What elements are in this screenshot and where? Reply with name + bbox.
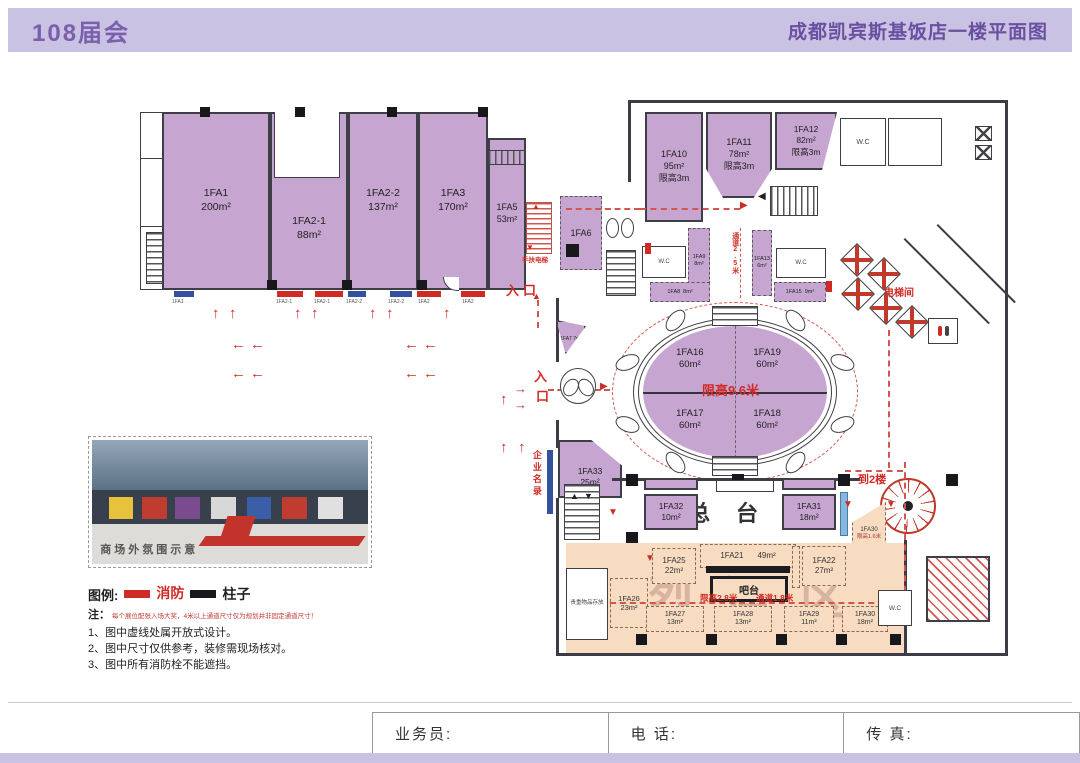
room-1fa31: 1FA3118m² xyxy=(782,494,836,530)
entrance-label-vertical: 入 xyxy=(534,370,547,384)
elevator-icon xyxy=(975,145,992,160)
wall-segment xyxy=(628,100,1008,103)
pillar xyxy=(566,244,579,257)
up-arrow-icon: ↑ xyxy=(369,306,377,321)
pillar xyxy=(626,474,638,486)
room-1fa28: 1FA2813m² xyxy=(714,606,772,632)
down-triangle-icon: ▼ xyxy=(843,500,853,510)
legend-title: 图例: xyxy=(88,585,118,604)
pillar xyxy=(417,280,427,290)
aisle-note: 通道2.5米 xyxy=(731,232,739,274)
wall-segment xyxy=(556,498,559,656)
pillar xyxy=(295,107,305,117)
room-1fa11: 1FA1178m²限高3m xyxy=(706,112,772,198)
pillar xyxy=(478,107,488,117)
room-1fa21: 1FA2149m² xyxy=(700,544,796,568)
red-carpet xyxy=(199,536,366,546)
room-strip xyxy=(792,546,800,588)
room-1fa12: 1FA1282m²限高3m xyxy=(775,112,837,170)
header-bar: 108届会 成都凯宾斯基饭店一楼平面图 xyxy=(8,8,1072,52)
fire-hydrant-marker xyxy=(645,243,651,254)
front-desk-label: 总台 xyxy=(688,496,784,528)
note-prefix: 注： xyxy=(88,606,110,622)
page-title: 108届会 xyxy=(32,13,130,48)
booth-marker xyxy=(390,291,412,297)
pillar xyxy=(200,107,210,117)
plan-title: 成都凯宾斯基饭店一楼平面图 xyxy=(788,17,1048,44)
storefront xyxy=(175,497,200,520)
desk-counter xyxy=(782,478,836,490)
phone-field: 电 话: xyxy=(608,713,844,753)
footer-accent-bar xyxy=(0,753,1080,763)
booth-marker-label: 1FA2 xyxy=(418,299,430,305)
booth-marker xyxy=(348,291,366,297)
room-1fa15: 1FA159m² xyxy=(774,282,826,302)
oval-entry-steps xyxy=(712,306,758,326)
wall-segment xyxy=(558,653,1008,656)
room-1fa29: 1FA2911m² xyxy=(784,606,834,632)
room-1fa1: 1FA1200m² xyxy=(162,112,270,290)
up-triangle-icon: ▲ xyxy=(570,492,579,501)
note-red-row: 注： 每个展位配张入场大奖，4米以上通道尺寸仅为规划并非固定通道尺寸！ xyxy=(88,606,317,622)
path-dashed xyxy=(904,462,906,602)
storefront xyxy=(142,497,167,520)
pillar xyxy=(342,280,352,290)
legend-pillar-label: 柱子 xyxy=(222,584,250,604)
floor-plan-sheet: 108届会 成都凯宾斯基饭店一楼平面图 1FA1200m² 1FA2-188m²… xyxy=(0,0,1080,763)
footer-table: 业务员: 电 话: 传 真: xyxy=(372,712,1080,754)
note-red: 每个展位配张入场大奖，4米以上通道尺寸仅为规划并非固定通道尺寸！ xyxy=(112,610,317,620)
elevator-icon xyxy=(867,257,901,291)
down-triangle-icon: ▼ xyxy=(584,492,593,501)
up-arrow-icon: ↑ xyxy=(443,306,451,321)
left-arrow-icon: ← xyxy=(423,337,438,352)
wall-diagonal xyxy=(937,224,1016,303)
right-arrow-icon: → xyxy=(514,382,527,395)
path-dashed xyxy=(740,228,741,298)
room-wc: W.C xyxy=(776,248,826,278)
pillar xyxy=(890,634,901,645)
room-valuables: 贵重物品存放 xyxy=(566,568,608,640)
stairs-icon xyxy=(770,186,818,216)
room-1fa32: 1FA3210m² xyxy=(644,494,698,530)
left-arrow-icon: ← xyxy=(250,337,265,352)
stairs-red-icon xyxy=(926,556,990,622)
room-1fa7: 1FA7 7m² xyxy=(556,320,586,354)
oval-height-note: 限高9.6米 xyxy=(702,384,759,398)
door-leaf-icon xyxy=(575,376,597,400)
note-3: 3、图中所有消防栓不能遮挡。 xyxy=(88,658,317,674)
path-dashed xyxy=(566,208,640,210)
wall-segment xyxy=(556,298,559,362)
up-triangle-icon: ▲ xyxy=(532,203,540,211)
red-carpet xyxy=(221,516,256,538)
right-triangle-icon: ▶ xyxy=(600,382,608,392)
booth-marker xyxy=(417,291,441,297)
door-leaf-icon xyxy=(621,218,634,238)
spiral-stair-icon xyxy=(880,478,936,534)
divider-line xyxy=(8,702,1072,703)
pillar xyxy=(836,634,847,645)
mall-exterior-photo: 商场外氛围示意 xyxy=(92,440,368,564)
booth-marker-label: 1FA2 xyxy=(462,299,474,305)
desk-counter xyxy=(716,480,774,492)
room-wc: W.C xyxy=(840,118,886,166)
room-1fa17: 1FA1760m² xyxy=(676,408,703,433)
note-2: 2、图中尺寸仅供参考，装修需现场核对。 xyxy=(88,642,317,658)
room-1fa25: 1FA2522m² xyxy=(652,548,696,584)
stairs-icon xyxy=(488,150,526,165)
up-triangle-icon: ▲ xyxy=(532,292,541,301)
elevator-icon xyxy=(975,126,992,141)
legend-fire-swatch xyxy=(124,590,150,598)
directory-board xyxy=(547,450,553,514)
room-1fa27: 1FA2713m² xyxy=(646,606,704,632)
right-triangle-icon: ▶ xyxy=(740,201,748,211)
room-1fa18: 1FA1860m² xyxy=(753,408,780,433)
room-1fa2-2: 1FA2-2137m² xyxy=(348,112,418,290)
path-dashed xyxy=(640,208,740,210)
left-arrow-icon: ← xyxy=(250,366,265,381)
fax-field: 传 真: xyxy=(843,713,1079,753)
room-wc: W.C xyxy=(878,590,912,626)
up-arrow-icon: ↑ xyxy=(500,440,508,455)
storefront xyxy=(282,497,307,520)
up-arrow-icon: ↑ xyxy=(500,392,508,407)
directory-label: 企业名录 xyxy=(531,450,541,498)
photo-frame: 商场外氛围示意 xyxy=(88,436,372,568)
up-arrow-icon: ↑ xyxy=(294,306,302,321)
pillar xyxy=(706,634,717,645)
booth-marker-label: 1FA1 xyxy=(172,299,184,305)
room-1fa22: 1FA2227m² xyxy=(802,546,846,586)
photo-caption: 商场外氛围示意 xyxy=(100,541,198,557)
path-dashed xyxy=(610,602,904,604)
void-room xyxy=(274,112,340,178)
room-1fa10: 1FA1095m²限高3m xyxy=(645,112,703,222)
up-arrow-icon: ↑ xyxy=(386,306,394,321)
booth-marker xyxy=(315,291,343,297)
left-arrow-icon: ← xyxy=(231,337,246,352)
room-1fa19: 1FA1960m² xyxy=(753,347,780,372)
room-1fa3: 1FA3170m² xyxy=(418,112,488,290)
person-icon xyxy=(938,326,942,336)
room-1fa13: 1FA136m² xyxy=(752,230,772,296)
revolving-door-icon xyxy=(560,368,596,404)
storefront xyxy=(318,497,343,520)
wall-segment xyxy=(628,100,631,182)
pillar xyxy=(387,107,397,117)
fire-hydrant-marker xyxy=(826,281,832,292)
oval-entry-steps xyxy=(712,456,758,476)
up-arrow-icon: ↑ xyxy=(229,306,237,321)
booth-marker xyxy=(461,291,485,297)
to-2f-label: 到2楼 xyxy=(858,474,886,486)
escalator-label: 手扶电梯 xyxy=(522,257,548,264)
left-arrow-icon: ← xyxy=(231,366,246,381)
up-arrow-icon: ↑ xyxy=(311,306,319,321)
left-arrow-icon: ← xyxy=(423,366,438,381)
down-triangle-icon: ▼ xyxy=(608,508,618,518)
pillar xyxy=(267,280,277,290)
photo-glass-facade xyxy=(92,440,368,490)
left-arrow-icon: ← xyxy=(404,337,419,352)
room-generic xyxy=(888,118,942,166)
room-1fa16: 1FA1660m² xyxy=(676,347,703,372)
desk-counter xyxy=(644,478,698,490)
entrance-label-vertical: 口 xyxy=(536,390,549,404)
pillar xyxy=(776,634,787,645)
notes-block: 注： 每个展位配张入场大奖，4米以上通道尺寸仅为规划并非固定通道尺寸！ 1、图中… xyxy=(88,606,317,674)
bar-counter-wall xyxy=(706,566,790,573)
booth-marker-label: 1FA2-1 xyxy=(276,299,292,305)
booth-marker xyxy=(174,291,194,297)
right-arrow-icon: → xyxy=(514,398,527,411)
left-triangle-icon: ◀ xyxy=(758,192,766,202)
restroom-sign xyxy=(928,318,958,344)
left-arrow-icon: ← xyxy=(404,366,419,381)
down-triangle-icon: ▼ xyxy=(526,244,534,252)
note-1: 1、图中虚线处属开放式设计。 xyxy=(88,626,317,642)
up-arrow-icon: ↑ xyxy=(518,440,526,455)
pillar xyxy=(946,474,958,486)
stairs-icon xyxy=(606,250,636,296)
path-dashed xyxy=(845,470,903,472)
legend-fire-label: 消防 xyxy=(156,586,184,601)
booth-marker-label: 1FA2-2 xyxy=(346,299,362,305)
legend-pillar-swatch xyxy=(190,590,216,598)
storefront xyxy=(109,497,134,520)
legend: 图例: 消防 柱子 xyxy=(88,584,250,604)
person-icon xyxy=(945,326,949,336)
up-arrow-icon: ↑ xyxy=(212,306,220,321)
pillar xyxy=(636,634,647,645)
booth-marker xyxy=(277,291,303,297)
wall-segment xyxy=(1005,100,1008,656)
path-dashed xyxy=(537,300,539,328)
pillar xyxy=(838,474,850,486)
elevator-hall-label: 电梯间 xyxy=(884,288,914,299)
path-dashed xyxy=(888,330,890,468)
agent-field: 业务员: xyxy=(373,713,608,753)
room-1fa8: 1FA88m² xyxy=(650,282,710,302)
door-leaf-icon xyxy=(606,218,619,238)
